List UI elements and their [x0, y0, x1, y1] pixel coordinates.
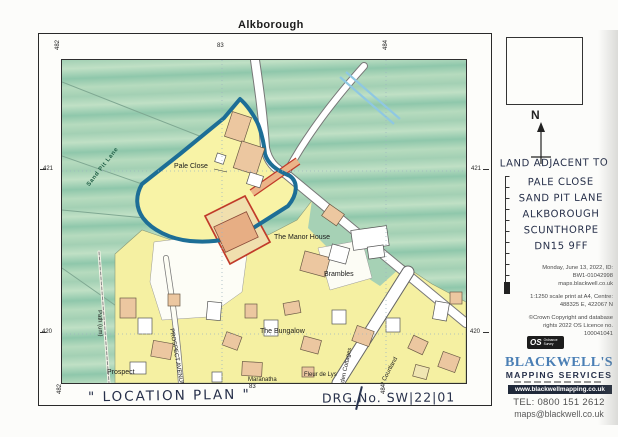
grid-label-top-right: 484 [383, 40, 389, 50]
print-info-block: Monday, June 13, 2022, ID: BW1-01042998 … [498, 264, 613, 288]
map-canvas: Pale Close The Manor House Brambles The … [61, 59, 467, 384]
grid-tick-line [40, 332, 46, 333]
os-logo-text: OS [530, 338, 542, 347]
map-frame: 482 83 484 421 420 421 420 482 83 484 [38, 33, 492, 406]
grid-label-bottom-left: 482 [57, 384, 63, 394]
print-info-line: BW1-01042998 [498, 272, 613, 280]
copyright-line: ©Crown Copyright and database [498, 314, 613, 322]
print-info-line: maps.blackwell.co.uk [498, 280, 613, 288]
brand-name: BLACKWELL'S [500, 355, 618, 371]
plot-reference-box [506, 37, 583, 105]
address-block: PALE CLOSE SAND PIT LANE ALKBOROUGH SCUN… [508, 175, 615, 256]
scale-info-line: 1:1250 scale print at A4, Centre: [498, 293, 613, 301]
map-label-fleur-de-lys: Fleur de Lys [304, 372, 337, 378]
brand-email: maps@blackwell.co.uk [500, 409, 618, 419]
drawing-title-handwritten: " LOCATION PLAN " [88, 387, 251, 406]
address-line: SAND PIT LANE [508, 191, 614, 208]
map-label-manor-house: The Manor House [274, 234, 330, 241]
ordnance-survey-logo: OS Ordnance Survey [527, 336, 564, 349]
drawing-number-handwritten: DRG.No. SW|22|01 [322, 389, 455, 405]
grid-label-top-center: 83 [217, 43, 224, 49]
grid-label-top-left: 482 [55, 40, 61, 50]
grid-tick-line [40, 169, 46, 170]
address-line: LAND ADJACENT TO [490, 157, 618, 169]
map-label-path-um: Path (um) [96, 310, 103, 337]
map-label-bungalow: The Bungalow [260, 328, 305, 335]
grid-label-right-upper: 421 [471, 166, 481, 172]
address-line: ALKBOROUGH [508, 207, 614, 224]
address-line: SCUNTHORPE [508, 223, 614, 240]
grid-tick-line [483, 332, 489, 333]
brand-subtitle: MAPPING SERVICES [500, 370, 618, 380]
map-label-prospect: Prospect [107, 369, 135, 376]
map-label-maranatha: Maranatha [248, 377, 277, 383]
print-info-line: Monday, June 13, 2022, ID: [498, 264, 613, 272]
grid-label-right-lower: 420 [470, 329, 480, 335]
brand-website: www.blackwellmapping.co.uk [508, 385, 612, 394]
copyright-block: ©Crown Copyright and database rights 202… [498, 314, 613, 338]
address-line: DN15 9FF [508, 239, 614, 256]
map-label-pale-close: Pale Close [174, 163, 208, 170]
map-label-brambles: Brambles [324, 271, 354, 278]
copyright-line: rights 2022 OS Licence no. [498, 322, 613, 330]
brand-phone: TEL: 0800 151 2612 [500, 397, 618, 408]
scale-info-block: 1:1250 scale print at A4, Centre: 488325… [498, 293, 613, 309]
page-title: Alkborough [238, 19, 304, 31]
address-line: PALE CLOSE [508, 175, 614, 192]
os-logo-subtext: Ordnance Survey [544, 339, 561, 346]
brand-tagline-strip [514, 381, 604, 383]
grid-tick-line [483, 169, 489, 170]
scanned-location-plan-page: { "page": { "title": "Alkborough" }, "ma… [0, 0, 618, 437]
scale-info-line: 488325 E, 422067 N [498, 301, 613, 309]
